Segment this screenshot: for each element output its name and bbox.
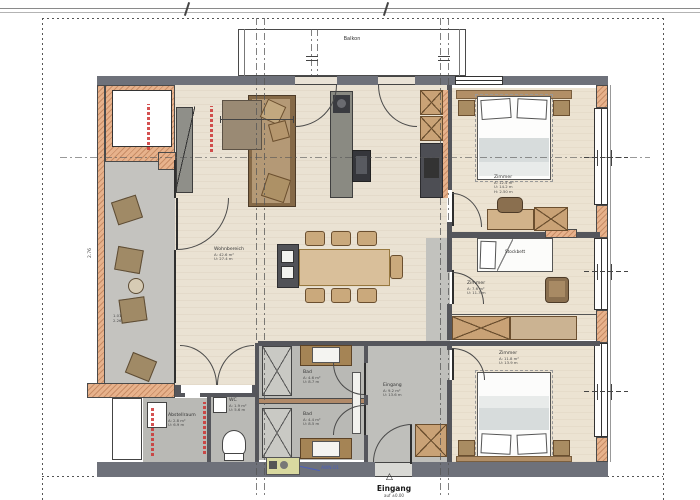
pillow bbox=[480, 241, 497, 270]
wall-bath-right bbox=[364, 435, 368, 462]
fridge-inner bbox=[424, 158, 439, 178]
red-annotation bbox=[203, 402, 206, 454]
room-label-abstellraum: Abstellraum A: 2.8 m² U: 6.9 m bbox=[168, 413, 196, 428]
storage-shelf bbox=[147, 402, 167, 428]
section-line bbox=[448, 18, 449, 497]
wall-wc-left bbox=[207, 393, 211, 462]
dining-chair bbox=[305, 288, 325, 303]
dimension-tick bbox=[220, 116, 221, 123]
dimension-tick bbox=[293, 116, 294, 123]
boundary-tick-icon bbox=[383, 2, 389, 16]
shower bbox=[262, 346, 292, 396]
boundary-tick-icon bbox=[184, 2, 190, 16]
section-line bbox=[264, 18, 265, 497]
nightstand bbox=[458, 440, 475, 456]
pillow bbox=[516, 433, 547, 455]
wardrobe bbox=[452, 316, 510, 340]
property-line-left bbox=[42, 18, 43, 500]
bed-blanket bbox=[479, 162, 549, 176]
door-axis-line bbox=[311, 29, 312, 81]
dining-chair bbox=[357, 231, 377, 246]
shower bbox=[262, 408, 292, 458]
tech-unit-label: AWN.01 bbox=[321, 466, 339, 471]
dining-table bbox=[299, 249, 390, 286]
nightstand bbox=[553, 440, 570, 456]
terrace-side-table bbox=[128, 278, 144, 294]
site-boundary-line-top-1 bbox=[0, 8, 700, 9]
window-axis-cross-icon bbox=[584, 264, 628, 280]
entrance-triangle-icon: △ bbox=[386, 473, 393, 482]
wall-bedroom2-bottom-line bbox=[452, 314, 596, 315]
pillow bbox=[480, 98, 511, 120]
exterior-wall-right-pier bbox=[596, 85, 608, 108]
ventilation-unit-part bbox=[280, 461, 288, 469]
storage-door-panel bbox=[112, 398, 142, 460]
axis-line-horizontal bbox=[60, 157, 650, 158]
pillow bbox=[480, 433, 511, 455]
exterior-wall-right-pier bbox=[596, 437, 608, 462]
property-line-top bbox=[42, 18, 663, 19]
kitchen-oven-door bbox=[356, 156, 367, 174]
terrace-dimension-text: 1.01 2.26 bbox=[113, 314, 121, 323]
nightstand bbox=[458, 100, 475, 116]
window-axis-cross-icon bbox=[584, 384, 628, 400]
terrace-glazing bbox=[174, 250, 176, 383]
exterior-wall-lower-left bbox=[87, 383, 175, 398]
wardrobe bbox=[534, 207, 568, 231]
wall-storage-top bbox=[175, 393, 185, 397]
wall-vestibule-stub bbox=[252, 385, 258, 393]
dining-chair bbox=[390, 255, 403, 279]
exterior-wall-right-pier bbox=[596, 310, 608, 343]
lounge-chair bbox=[114, 246, 144, 274]
washbasin bbox=[312, 347, 340, 363]
wall-bath-right bbox=[364, 395, 368, 405]
armchair-seat bbox=[549, 281, 565, 297]
headboard-shelf bbox=[456, 456, 572, 462]
axis-marker-icon bbox=[306, 60, 318, 61]
axis-marker-icon bbox=[306, 56, 318, 57]
hall-closet bbox=[415, 424, 447, 457]
desk-chair bbox=[497, 197, 523, 213]
wardrobe-plain bbox=[510, 316, 577, 340]
room-label-zimmer3: Zimmer A: 11.8 m² U: 13.9 m bbox=[499, 351, 519, 366]
door-leaf bbox=[364, 405, 366, 435]
left-wall-dimension: 2.76 bbox=[88, 248, 93, 258]
balcony-label: Balkon bbox=[320, 36, 384, 42]
door-axis-line bbox=[317, 29, 318, 81]
cooktop-burner bbox=[281, 266, 294, 279]
room-label-bad1: Bad A: 4.6 m² U: 8.7 m bbox=[303, 370, 320, 385]
red-annotation bbox=[210, 106, 213, 152]
red-annotation bbox=[151, 408, 154, 456]
room-label-zimmer2: Zimmer A: 7.6 m² U: 11.3 m bbox=[467, 281, 486, 296]
site-boundary-line-top-2 bbox=[0, 12, 700, 13]
entrance-door-threshold bbox=[375, 462, 412, 477]
balcony-door-threshold bbox=[378, 76, 415, 85]
dining-chair bbox=[331, 288, 351, 303]
neighbour-cutout bbox=[112, 90, 172, 147]
bed-blanket bbox=[479, 408, 549, 430]
red-annotation bbox=[147, 104, 150, 150]
balcony-parapet-line bbox=[459, 29, 460, 76]
washbasin bbox=[312, 441, 340, 457]
door-leaf bbox=[364, 363, 366, 395]
bed-blanket bbox=[479, 396, 549, 408]
floor-plan-canvas: Balkon bbox=[0, 0, 700, 500]
bunk-bed-label: Stockbett bbox=[505, 249, 525, 254]
bedroom1-top-window bbox=[455, 76, 503, 85]
property-line-right bbox=[663, 18, 664, 500]
entrance-label: Eingang bbox=[366, 484, 422, 493]
room-label-eingang: Eingang A: 9.2 m² U: 13.6 m bbox=[383, 383, 402, 398]
wall-storage-top bbox=[200, 393, 212, 397]
balcony-door-threshold bbox=[295, 76, 337, 85]
exterior-wall-top bbox=[97, 76, 608, 85]
dining-chair bbox=[305, 231, 325, 246]
bed-blanket bbox=[479, 138, 549, 162]
room-label-wc: WC A: 1.9 m² U: 5.6 m bbox=[229, 398, 246, 413]
wall-vestibule-stub bbox=[175, 385, 181, 393]
section-line bbox=[440, 18, 441, 497]
wc-sink bbox=[213, 397, 227, 413]
cooktop-burner bbox=[281, 250, 294, 263]
lounge-chair bbox=[118, 296, 147, 323]
room-label-zimmer1: Zimmer A: 12.4 m² U: 14.2 m H: 2.50 m bbox=[494, 175, 514, 195]
pillow bbox=[516, 98, 547, 120]
entrance-sublabel: auf ±0.00 bbox=[366, 493, 422, 498]
kitchen-sink-basin bbox=[337, 99, 346, 108]
room-label-wohnbereich: Wohnbereich A: 42.6 m² U: 27.4 m bbox=[214, 247, 244, 262]
nightstand bbox=[553, 100, 570, 116]
room-label-bad2: Bad A: 4.4 m² U: 8.5 m bbox=[303, 412, 320, 427]
window-axis-cross-icon bbox=[584, 150, 628, 166]
balcony-parapet-line bbox=[244, 29, 245, 76]
tv-cabinet-diagonal bbox=[175, 106, 195, 194]
exterior-wall-bottom bbox=[97, 462, 608, 477]
dimension-line bbox=[220, 119, 294, 120]
toilet-tank bbox=[224, 453, 244, 461]
ventilation-unit-part bbox=[269, 461, 277, 469]
dining-chair bbox=[331, 231, 351, 246]
section-line bbox=[256, 18, 257, 497]
wall-bath-right bbox=[364, 343, 368, 363]
dining-chair bbox=[357, 288, 377, 303]
blanket-fold bbox=[497, 239, 513, 271]
exterior-wall-left bbox=[97, 85, 105, 392]
